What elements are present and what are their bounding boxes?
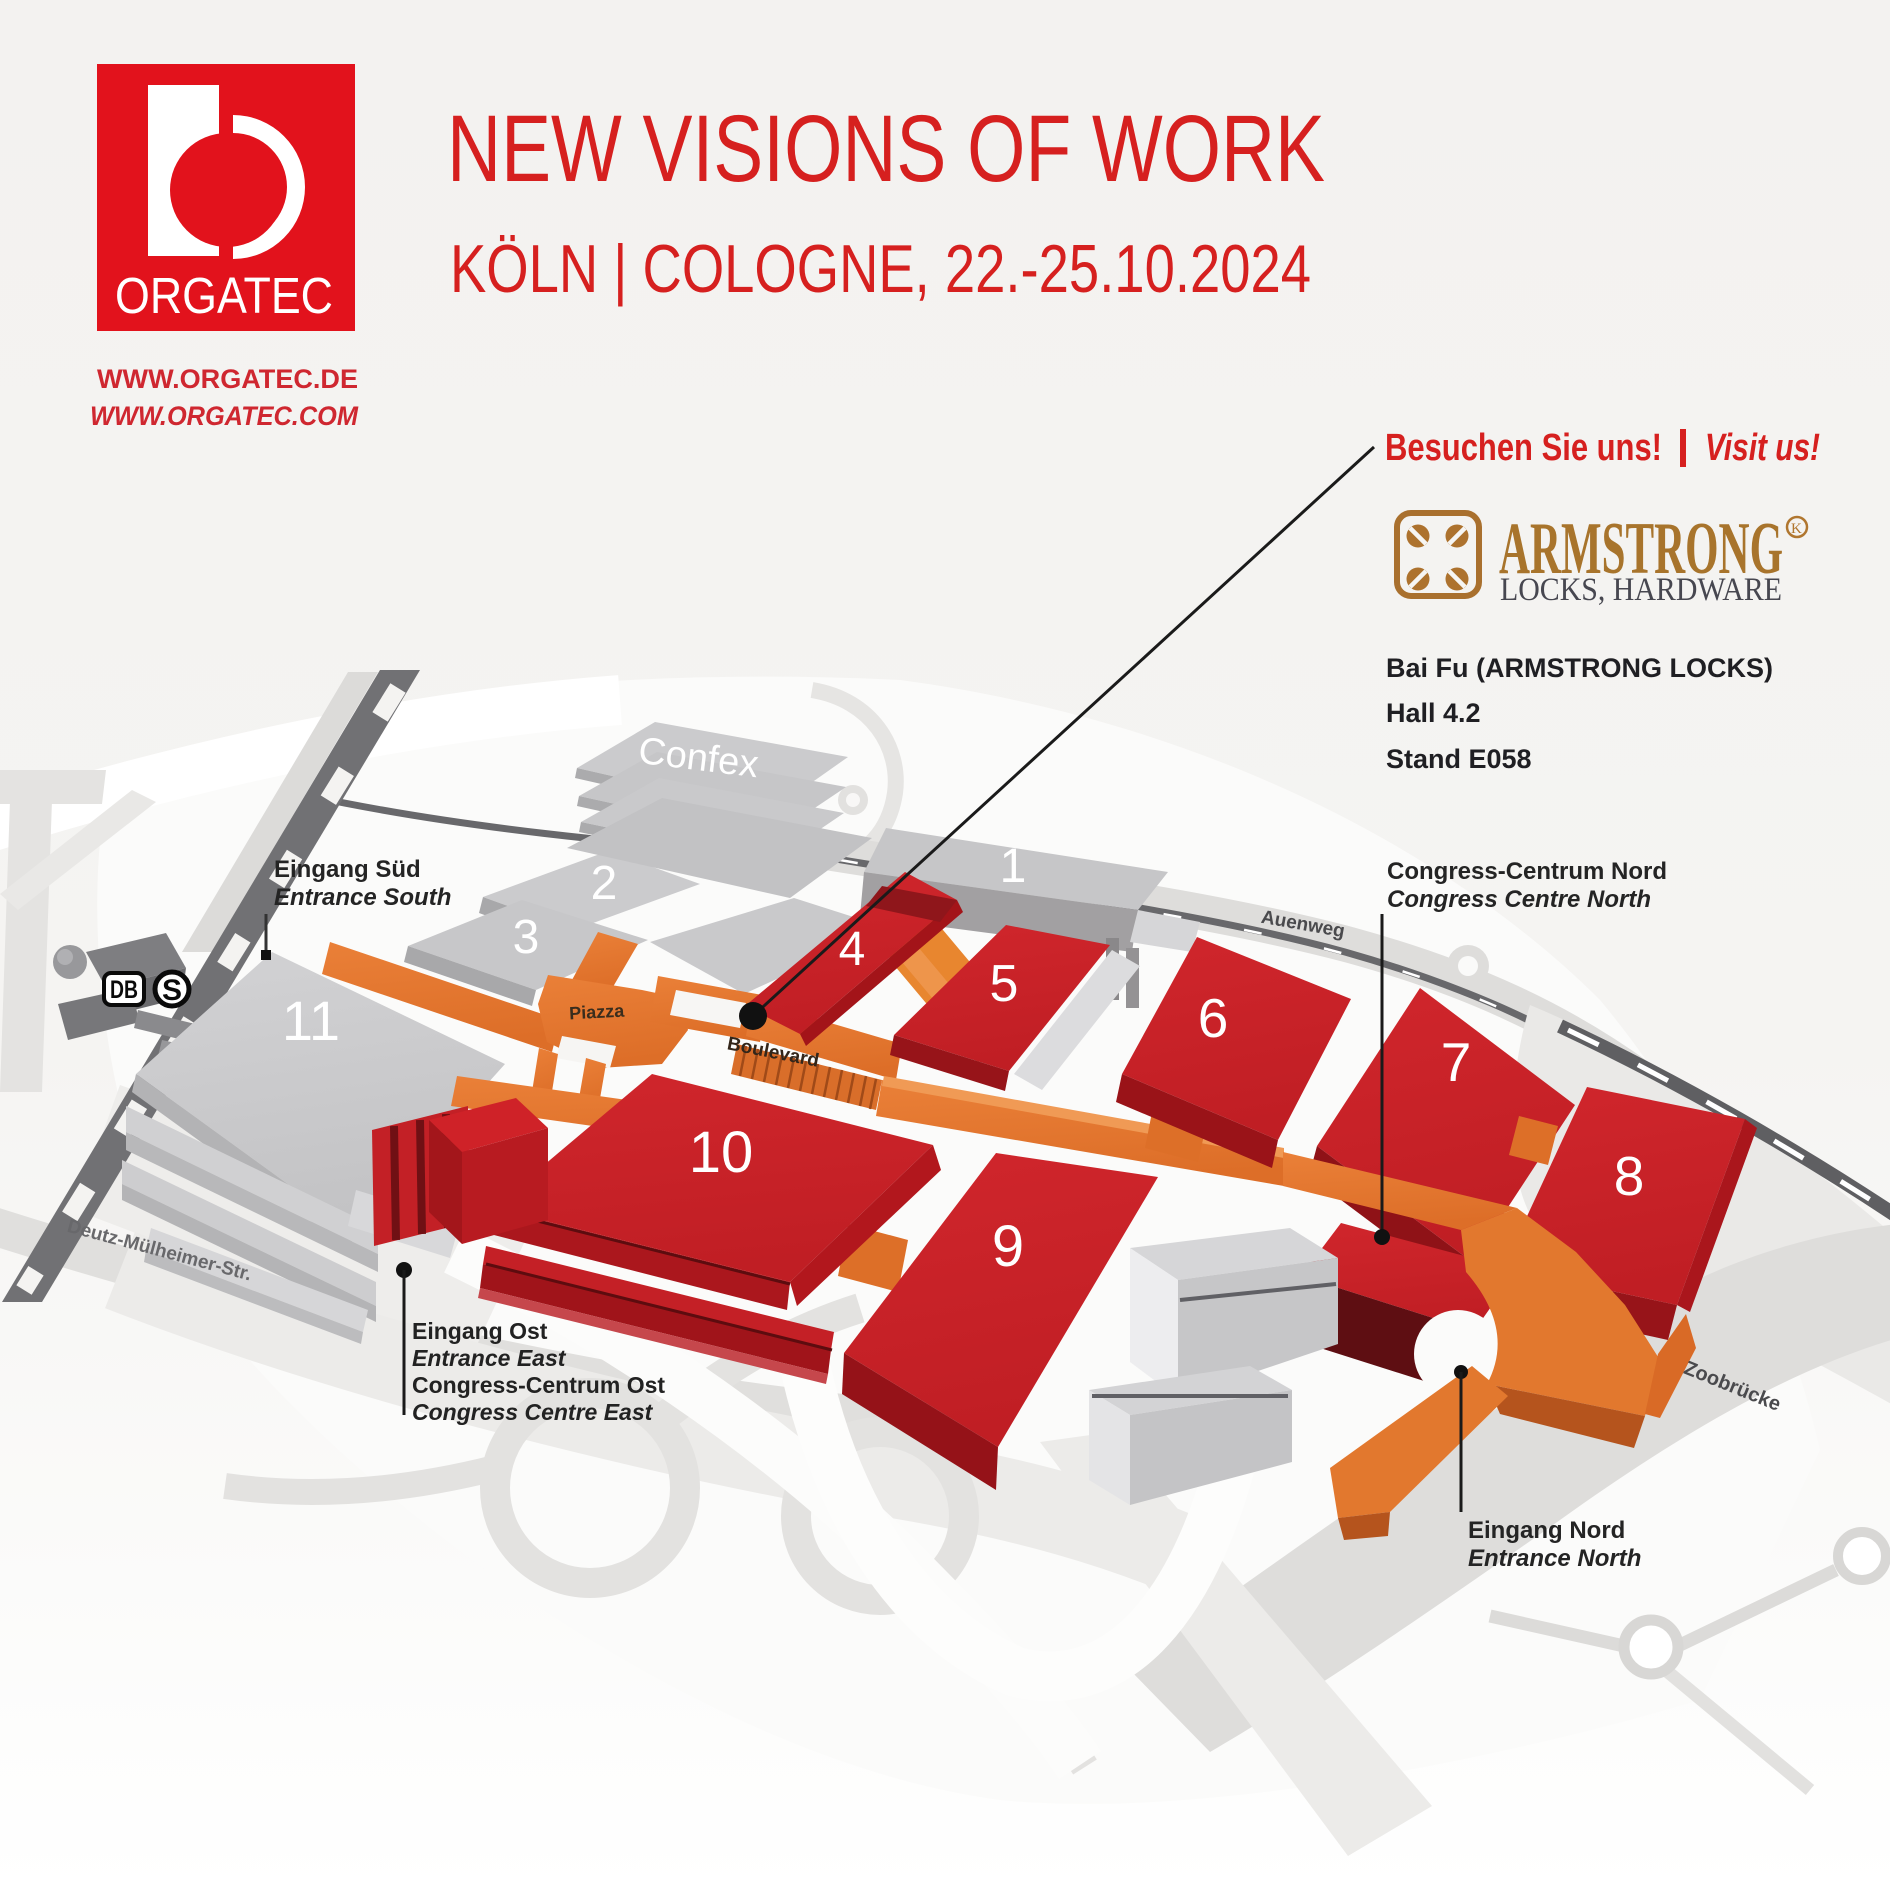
- svg-text:Congress-Centrum Ost: Congress-Centrum Ost: [412, 1372, 665, 1398]
- svg-text:Stand E058: Stand E058: [1386, 744, 1532, 774]
- svg-text:7: 7: [1441, 1031, 1472, 1093]
- svg-text:LOCKS, HARDWARE: LOCKS, HARDWARE: [1500, 572, 1782, 608]
- svg-text:3: 3: [513, 911, 540, 964]
- svg-text:Congress Centre East: Congress Centre East: [412, 1399, 654, 1425]
- svg-text:11: 11: [282, 989, 340, 1052]
- svg-text:1: 1: [1000, 840, 1027, 893]
- svg-text:Eingang Ost: Eingang Ost: [412, 1318, 548, 1344]
- svg-text:Piazza: Piazza: [569, 1001, 626, 1024]
- svg-text:ORGATEC: ORGATEC: [115, 267, 333, 324]
- svg-text:KÖLN | COLOGNE, 22.-25.10.2024: KÖLN | COLOGNE, 22.-25.10.2024: [450, 231, 1311, 307]
- svg-text:Bai Fu (ARMSTRONG LOCKS): Bai Fu (ARMSTRONG LOCKS): [1386, 653, 1773, 683]
- svg-text:S: S: [162, 974, 182, 1007]
- svg-text:8: 8: [1614, 1145, 1645, 1207]
- svg-text:DB: DB: [110, 976, 138, 1004]
- svg-text:Eingang Süd: Eingang Süd: [274, 856, 421, 883]
- svg-text:2: 2: [591, 857, 618, 910]
- svg-text:5: 5: [990, 955, 1019, 1013]
- svg-text:Entrance North: Entrance North: [1468, 1545, 1641, 1572]
- svg-text:K: K: [1791, 521, 1802, 537]
- svg-text:WWW.ORGATEC.COM: WWW.ORGATEC.COM: [90, 401, 358, 431]
- svg-text:Hall 4.2: Hall 4.2: [1386, 698, 1481, 728]
- svg-text:Visit us!: Visit us!: [1705, 427, 1820, 469]
- svg-text:Besuchen Sie uns!: Besuchen Sie uns!: [1385, 427, 1662, 469]
- svg-text:9: 9: [992, 1214, 1024, 1279]
- svg-text:Entrance East: Entrance East: [412, 1345, 567, 1371]
- svg-text:Eingang Nord: Eingang Nord: [1468, 1517, 1625, 1544]
- svg-text:6: 6: [1198, 987, 1229, 1049]
- svg-text:Congress Centre North: Congress Centre North: [1387, 886, 1651, 913]
- svg-text:WWW.ORGATEC.DE: WWW.ORGATEC.DE: [97, 364, 358, 394]
- svg-text:10: 10: [689, 1120, 754, 1185]
- svg-text:Congress-Centrum Nord: Congress-Centrum Nord: [1387, 858, 1667, 885]
- svg-text:4: 4: [839, 923, 866, 976]
- svg-text:NEW VISIONS OF WORK: NEW VISIONS OF WORK: [447, 96, 1325, 202]
- svg-text:Entrance South: Entrance South: [274, 884, 451, 911]
